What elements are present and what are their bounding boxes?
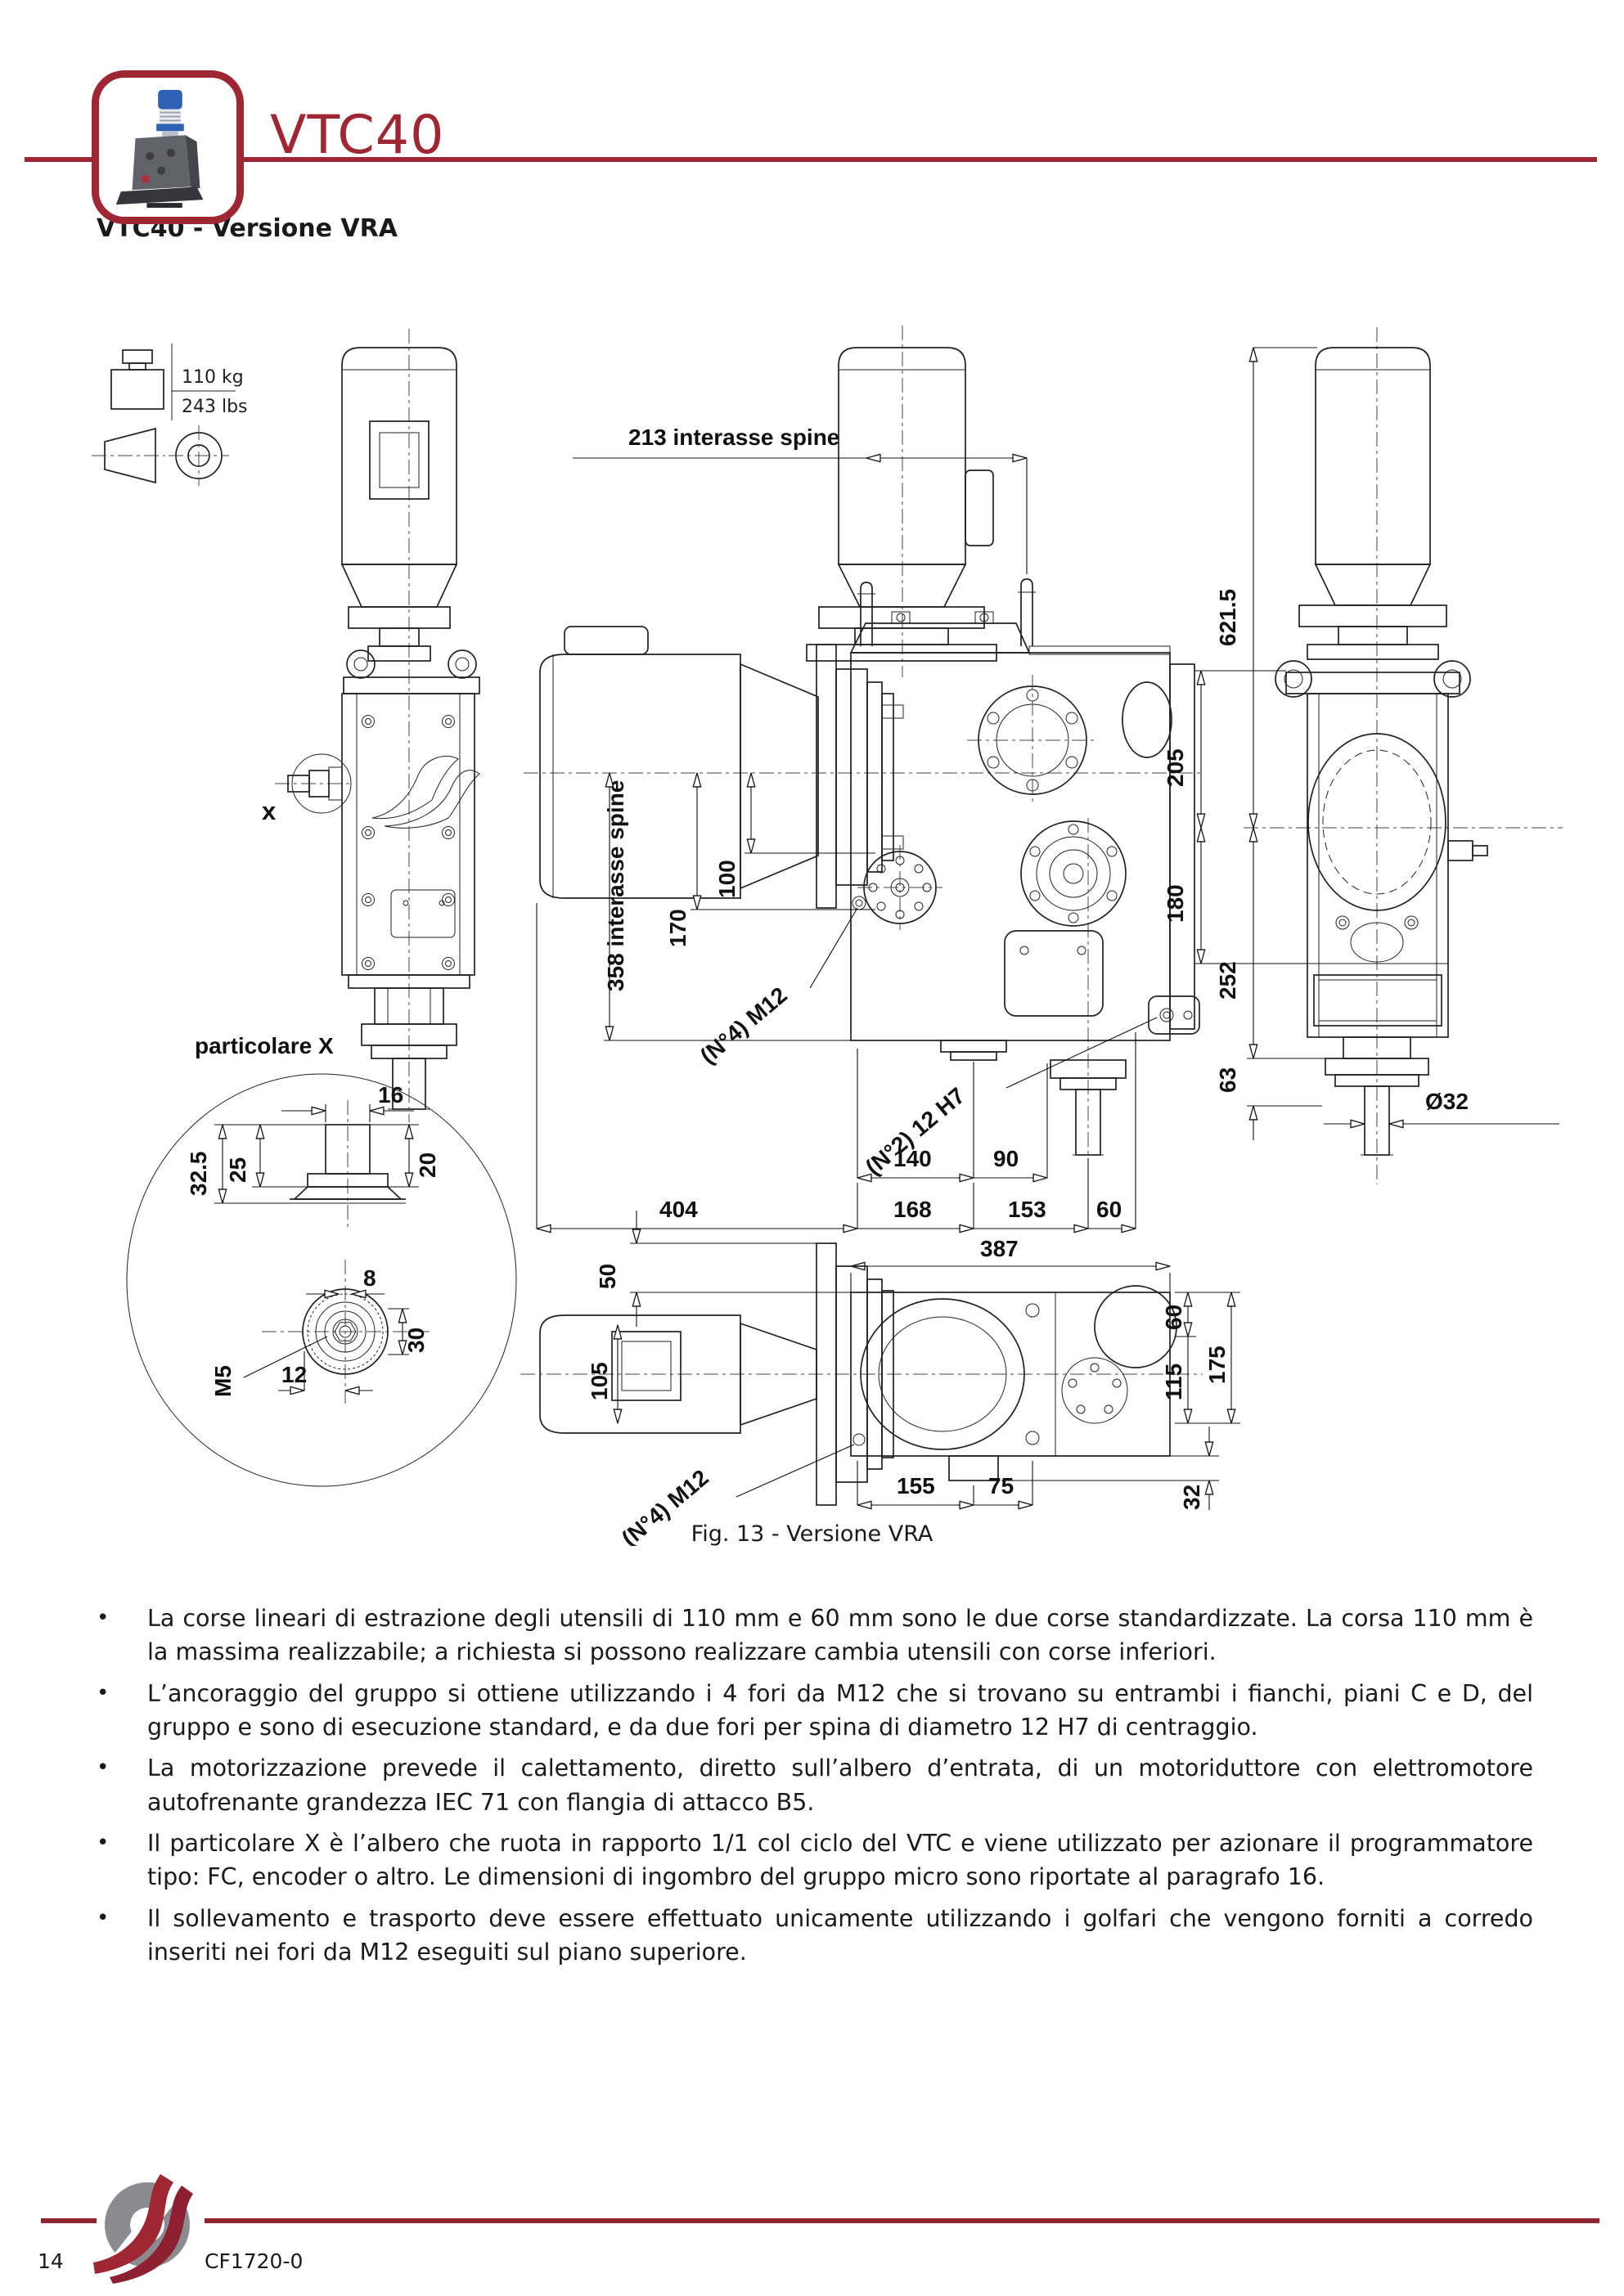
bullet-text: Il sollevamento e trasporto deve essere … bbox=[147, 1902, 1533, 1970]
weight-lbs: 243 lbs bbox=[182, 397, 248, 417]
dim-60b: 60 bbox=[1161, 1305, 1186, 1330]
dim-175: 175 bbox=[1204, 1346, 1230, 1384]
detail-title: particolare X bbox=[195, 1033, 334, 1058]
dim-168: 168 bbox=[893, 1197, 932, 1222]
dim-205: 205 bbox=[1163, 748, 1188, 787]
dim-153: 153 bbox=[1008, 1197, 1046, 1222]
dim-90: 90 bbox=[993, 1146, 1019, 1171]
document-code: CF1720-0 bbox=[205, 2249, 303, 2273]
page-number: 14 bbox=[38, 2249, 64, 2273]
dim-115: 115 bbox=[1161, 1364, 1186, 1400]
dim-105: 105 bbox=[587, 1362, 612, 1400]
technical-drawing: 110 kg 243 lbs bbox=[0, 319, 1624, 1546]
company-logo-icon bbox=[92, 2154, 208, 2292]
bullet-text: L’ancoraggio del gruppo si ottiene utili… bbox=[147, 1677, 1533, 1745]
dim-180: 180 bbox=[1163, 884, 1188, 923]
page-title: VTC40 bbox=[270, 105, 444, 166]
weight-symbol: 110 kg 243 lbs bbox=[111, 344, 248, 420]
dim-8: 8 bbox=[363, 1265, 376, 1291]
header-rule bbox=[25, 157, 1597, 162]
dim-252: 252 bbox=[1215, 961, 1240, 1000]
dim-16: 16 bbox=[378, 1082, 403, 1108]
weight-kg: 110 kg bbox=[182, 367, 244, 388]
detail-x-view: 16 32.5 25 20 8 bbox=[127, 1074, 516, 1486]
dim-m5: M5 bbox=[210, 1365, 236, 1397]
dim-60: 60 bbox=[1096, 1197, 1122, 1222]
bullet-icon: • bbox=[97, 1902, 147, 1970]
dim-170: 170 bbox=[665, 909, 691, 947]
bottom-view: 50 105 (N°4) M12 155 75 60 115 175 bbox=[520, 1211, 1240, 1546]
dim-25: 25 bbox=[225, 1157, 250, 1183]
bullet-text: Il particolare X è l’albero che ruota in… bbox=[147, 1826, 1533, 1894]
bullet-list: • La corse lineari di estrazione degli u… bbox=[97, 1602, 1533, 1976]
dim-404: 404 bbox=[659, 1197, 698, 1222]
footer-rule-right bbox=[205, 2218, 1599, 2223]
front-view-dimensions: 213 interasse spine 358 interasse spine … bbox=[537, 425, 1170, 1297]
bullet-icon: • bbox=[97, 1602, 147, 1669]
dim-m12-side: (N°4) M12 bbox=[695, 982, 792, 1069]
front-view bbox=[524, 326, 1203, 1188]
dim-100: 100 bbox=[714, 860, 740, 898]
bullet-text: La corse lineari di estrazione degli ute… bbox=[147, 1602, 1533, 1669]
x-marker-label: x bbox=[262, 797, 277, 825]
list-item: • La corse lineari di estrazione degli u… bbox=[97, 1602, 1533, 1669]
bullet-icon: • bbox=[97, 1677, 147, 1745]
product-photo bbox=[106, 85, 229, 209]
figure-caption: Fig. 13 - Versione VRA bbox=[0, 1521, 1624, 1547]
dim-387: 387 bbox=[980, 1236, 1019, 1261]
dim-30: 30 bbox=[403, 1328, 429, 1353]
catalog-page: VTC40 VTC40 - Versione VRA 110 kg 243 lb… bbox=[0, 0, 1624, 2296]
dim-32-5: 32.5 bbox=[186, 1152, 211, 1197]
dim-20: 20 bbox=[415, 1152, 440, 1178]
dim-63: 63 bbox=[1215, 1067, 1240, 1093]
dim-dia32: Ø32 bbox=[1425, 1089, 1469, 1114]
dim-140: 140 bbox=[893, 1146, 932, 1171]
dim-621-5: 621.5 bbox=[1215, 589, 1240, 646]
list-item: • Il particolare X è l’albero che ruota … bbox=[97, 1826, 1533, 1894]
dim-75: 75 bbox=[988, 1473, 1014, 1498]
dim-interasse-358: 358 interasse spine bbox=[603, 780, 628, 991]
list-item: • Il sollevamento e trasporto deve esser… bbox=[97, 1902, 1533, 1970]
list-item: • L’ancoraggio del gruppo si ottiene uti… bbox=[97, 1677, 1533, 1745]
dim-32: 32 bbox=[1179, 1485, 1204, 1510]
dim-12: 12 bbox=[281, 1362, 307, 1387]
bullet-icon: • bbox=[97, 1826, 147, 1894]
projection-symbol bbox=[92, 425, 229, 486]
list-item: • La motorizzazione prevede il calettame… bbox=[97, 1751, 1533, 1819]
right-view: 621.5 205 180 252 63 Ø32 bbox=[1163, 327, 1563, 1184]
product-photo-box bbox=[92, 70, 244, 224]
dim-interasse-213: 213 interasse spine bbox=[628, 425, 839, 450]
footer-rule-left bbox=[41, 2218, 97, 2223]
bullet-icon: • bbox=[97, 1751, 147, 1819]
dim-50: 50 bbox=[595, 1264, 620, 1289]
bullet-text: La motorizzazione prevede il calettament… bbox=[147, 1751, 1533, 1819]
left-view: x bbox=[262, 329, 479, 1122]
dim-155: 155 bbox=[897, 1473, 935, 1498]
